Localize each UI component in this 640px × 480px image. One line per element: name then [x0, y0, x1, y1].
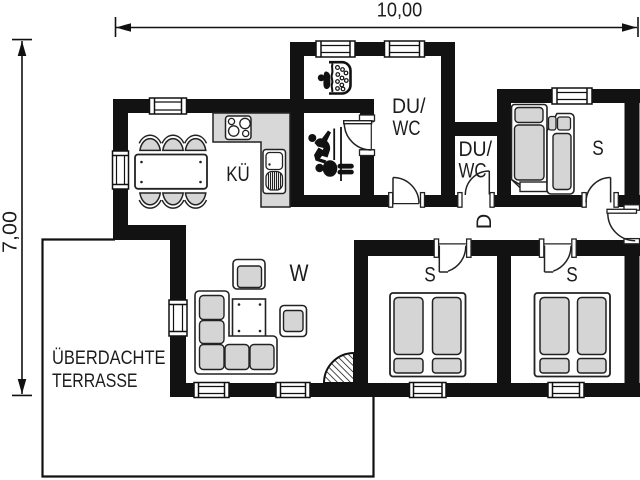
svg-text:KÜ: KÜ — [226, 163, 250, 186]
svg-text:S: S — [592, 136, 604, 160]
svg-text:ÜBERDACHTE: ÜBERDACHTE — [52, 348, 166, 369]
svg-text:S: S — [424, 263, 436, 287]
svg-text:S: S — [566, 263, 578, 287]
svg-text:WC: WC — [459, 159, 487, 183]
svg-text:DU/: DU/ — [392, 94, 426, 118]
svg-text:10,00: 10,00 — [377, 0, 423, 22]
svg-text:DU/: DU/ — [459, 137, 493, 161]
svg-text:TERRASSE: TERRASSE — [52, 371, 138, 392]
svg-text:WC: WC — [393, 116, 421, 140]
svg-text:7,00: 7,00 — [0, 211, 22, 253]
svg-text:D: D — [472, 214, 496, 230]
svg-text:W: W — [290, 260, 309, 287]
